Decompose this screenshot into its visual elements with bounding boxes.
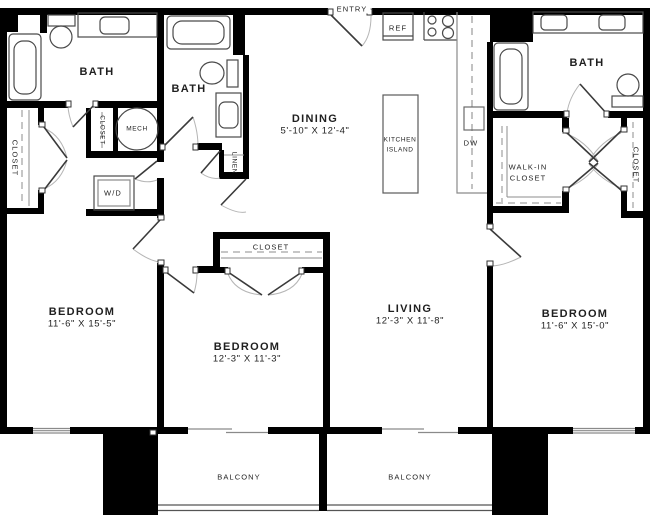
wall-segment — [643, 15, 650, 434]
wall-segment — [493, 111, 567, 118]
closet-left-door-leaf — [44, 127, 67, 158]
wall-segment — [0, 8, 328, 15]
wall-segment — [197, 143, 222, 150]
entry-label: ENTRY — [334, 5, 371, 14]
wall-segment — [635, 427, 650, 434]
linen-door-leaf — [201, 151, 220, 173]
dishwasher — [464, 107, 484, 130]
wall-segment — [86, 108, 91, 152]
sink-fixture — [100, 17, 129, 34]
linen-label: LINEN — [231, 152, 238, 174]
wall-segment — [86, 151, 164, 158]
dining-dims: 5'-10" X 12'-4" — [280, 126, 349, 137]
bedroom-left-door-leaf — [133, 220, 160, 249]
sink-fixture — [541, 15, 567, 30]
window-bedroom-right — [573, 429, 635, 434]
bath-left-door-leaf — [73, 104, 95, 127]
wall-segment — [213, 232, 220, 273]
closet-right-door-leaf — [589, 131, 621, 162]
laundry-door-leaf — [135, 161, 157, 179]
bath-left-label: BATH — [80, 66, 115, 78]
washer-dryer-label: W/D — [104, 189, 122, 198]
bath-right-door-leaf — [580, 84, 607, 114]
wall-segment — [487, 206, 569, 213]
closet-left-label: CLOSET — [11, 140, 20, 177]
wall-segment — [40, 15, 47, 33]
kitchen-island-label-line1: KITCHEN — [384, 137, 417, 144]
bath-right-label: BATH — [570, 57, 605, 69]
walls — [0, 8, 650, 515]
wall-segment — [0, 427, 33, 434]
window-bedroom-left — [33, 429, 70, 434]
balcony-left-label: BALCONY — [217, 473, 261, 482]
balcony-column — [103, 434, 158, 515]
entry-door-leaf — [331, 15, 362, 46]
bathtub-inner — [500, 49, 522, 104]
wall-segment — [7, 101, 68, 108]
bedroom-middle-dims: 12'-3" X 11'-3" — [213, 354, 281, 365]
sink-fixture — [599, 15, 625, 30]
closet-hall-label: CLOSET — [99, 115, 106, 145]
toilet-bowl — [617, 74, 639, 96]
burner — [443, 28, 454, 39]
toilet-tank — [48, 15, 75, 26]
toilet-bowl — [200, 62, 224, 84]
wall-segment — [302, 267, 330, 273]
wall-segment — [157, 263, 164, 430]
refrigerator-label: REF — [389, 24, 407, 33]
wall-segment — [458, 427, 573, 434]
wall-segment — [621, 211, 650, 218]
toilet-tank — [227, 60, 238, 87]
doors — [39, 9, 627, 435]
door-jambs — [39, 9, 627, 435]
slider-door-bedroom-middle — [188, 429, 268, 433]
bedroom-middle-door-leaf — [166, 272, 194, 293]
wall-segment — [487, 42, 493, 228]
bedroom-middle-label: BEDROOM — [214, 341, 281, 353]
bedroom-left-label: BEDROOM — [49, 306, 116, 318]
dining-label: DINING — [292, 113, 338, 125]
wall-segment — [197, 266, 213, 273]
slider-door-living — [382, 429, 458, 433]
kitchen-island-counter — [383, 95, 418, 193]
closet-right-label: CLOSET — [632, 147, 641, 184]
closet-left-door-leaf — [44, 160, 67, 190]
floor-plan: ENTRY BATH BATH BATH DINING 5'-10" X 12'… — [0, 0, 650, 515]
mech-label: MECH — [126, 126, 148, 133]
wall-segment — [95, 101, 164, 108]
bath-middle-label: BATH — [172, 83, 207, 95]
wall-segment — [70, 427, 188, 434]
bedroom-right-dims: 11'-6" X 15'-0" — [541, 321, 609, 332]
bath-middle-door-leaf — [164, 117, 193, 146]
closet-middle-label: CLOSET — [253, 243, 290, 252]
wall-segment — [0, 15, 7, 434]
bathtub-fixture — [494, 43, 528, 110]
kitchen-island-label-line2: ISLAND — [386, 147, 413, 154]
vanity-counter — [216, 93, 241, 137]
toilet-bowl — [50, 26, 72, 48]
bedroom-right-label: BEDROOM — [542, 308, 609, 320]
wall-segment — [0, 208, 44, 214]
closet-right-door-leaf — [589, 163, 621, 190]
hall-door-leaf — [221, 179, 246, 205]
wall-segment — [487, 265, 493, 430]
toilet-tank — [612, 96, 643, 107]
balcony-right-label: BALCONY — [388, 473, 432, 482]
bathtub-inner — [173, 21, 224, 44]
wall-segment — [157, 178, 164, 218]
wall-segment — [157, 15, 164, 105]
living-dims: 12'-3" X 11'-8" — [376, 316, 444, 327]
wall-segment — [243, 55, 249, 177]
balcony-column — [492, 434, 548, 515]
burner — [428, 16, 436, 24]
balcony-divider-wall — [319, 434, 327, 511]
wall-segment — [608, 111, 650, 118]
sink-fixture — [219, 102, 238, 128]
bedroom-right-door-leaf — [490, 229, 521, 257]
wall-segment — [7, 15, 18, 32]
wall-segment — [323, 232, 330, 430]
bedroom-left-dims: 11'-6" X 15'-5" — [48, 319, 116, 330]
bathtub-inner — [14, 41, 36, 94]
wall-segment — [490, 10, 533, 42]
burner — [428, 28, 436, 36]
living-label: LIVING — [388, 303, 432, 315]
walk-in-closet-label-line1: WALK-IN — [509, 163, 548, 172]
wall-segment — [233, 10, 245, 55]
burner — [443, 16, 454, 27]
dishwasher-label: DW — [464, 139, 479, 148]
walk-in-closet-label-line2: CLOSET — [510, 174, 547, 183]
wall-segment — [213, 232, 330, 239]
